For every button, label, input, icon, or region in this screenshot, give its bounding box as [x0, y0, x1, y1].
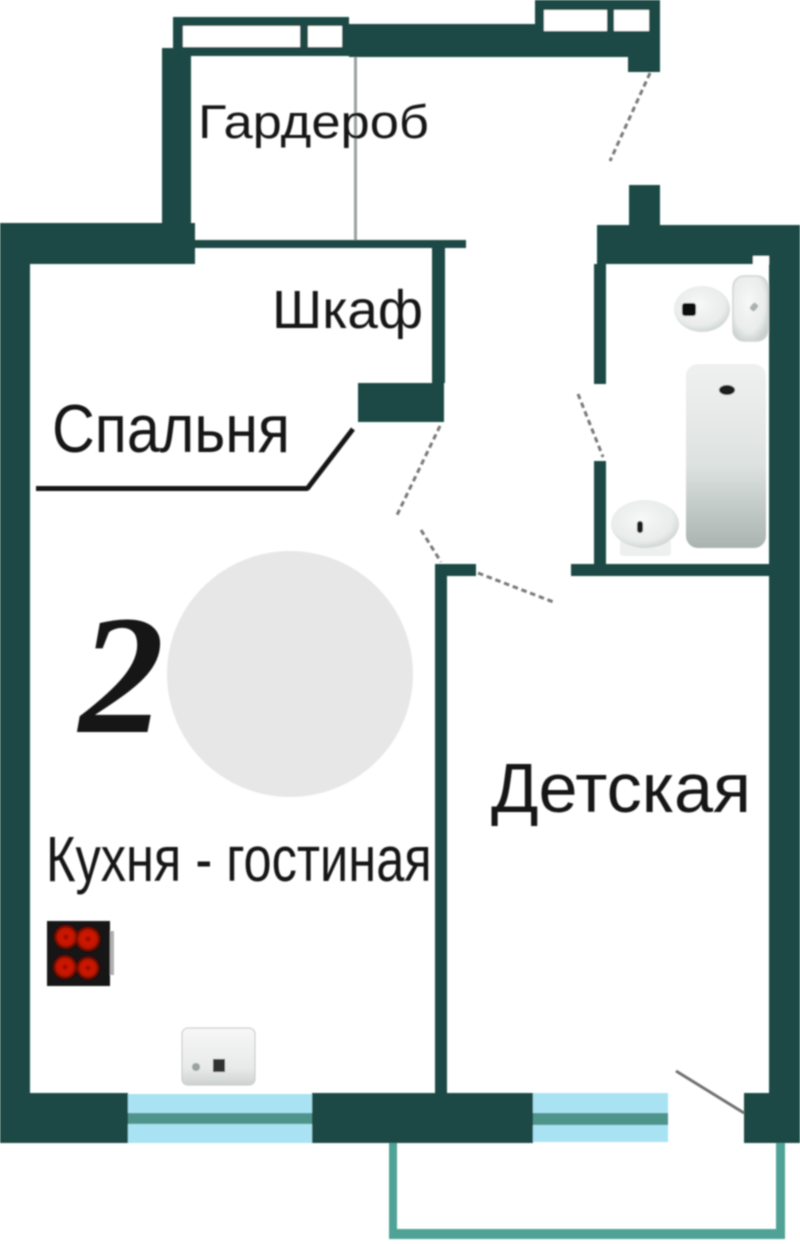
svg-text:Детская: Детская: [491, 749, 751, 827]
svg-text:Кухня - гостиная: Кухня - гостиная: [46, 824, 432, 895]
svg-text:2: 2: [76, 581, 164, 769]
svg-text:Гардероб: Гардероб: [198, 95, 429, 148]
svg-text:Спальня: Спальня: [52, 391, 290, 467]
svg-text:Шкаф: Шкаф: [272, 280, 423, 340]
